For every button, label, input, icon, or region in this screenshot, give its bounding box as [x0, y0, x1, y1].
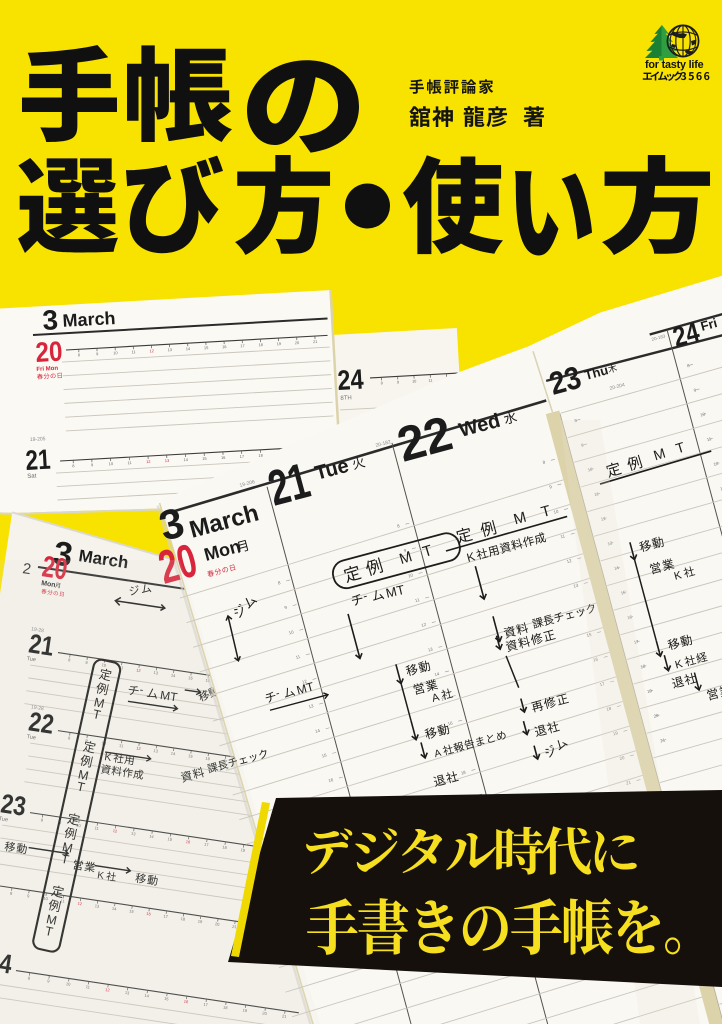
svg-text:17: 17 — [240, 454, 245, 459]
svg-text:21: 21 — [313, 339, 318, 344]
svg-text:Sat: Sat — [27, 473, 37, 480]
svg-text:10: 10 — [412, 379, 416, 383]
svg-text:11: 11 — [428, 378, 432, 382]
svg-text:21: 21 — [25, 444, 52, 476]
svg-text:12: 12 — [146, 459, 151, 464]
svg-text:15: 15 — [204, 345, 209, 350]
svg-text:9: 9 — [96, 351, 98, 356]
svg-text:13: 13 — [165, 458, 170, 463]
svg-text:16: 16 — [221, 455, 226, 460]
svg-text:13: 13 — [168, 347, 173, 352]
svg-text:March: March — [62, 308, 116, 331]
svg-text:Fri Mon: Fri Mon — [36, 366, 58, 373]
svg-text:11: 11 — [131, 349, 135, 354]
svg-text:20: 20 — [35, 336, 64, 368]
svg-text:18: 18 — [258, 342, 263, 347]
svg-text:17: 17 — [240, 343, 245, 348]
svg-text:15: 15 — [202, 456, 207, 461]
svg-text:8: 8 — [72, 463, 74, 468]
svg-text:8: 8 — [78, 352, 80, 357]
svg-text:for tasty life: for tasty life — [645, 59, 704, 71]
svg-text:8TH: 8TH — [340, 395, 352, 402]
svg-text:3: 3 — [42, 304, 59, 336]
svg-text:12: 12 — [149, 348, 154, 353]
svg-text:9: 9 — [397, 380, 399, 384]
svg-text:19-205: 19-205 — [30, 436, 46, 443]
svg-text:8: 8 — [381, 381, 383, 385]
svg-text:9: 9 — [91, 462, 93, 467]
svg-text:16: 16 — [222, 344, 227, 349]
svg-text:19: 19 — [277, 341, 282, 346]
svg-text:11: 11 — [127, 460, 131, 465]
svg-text:24: 24 — [337, 364, 365, 396]
